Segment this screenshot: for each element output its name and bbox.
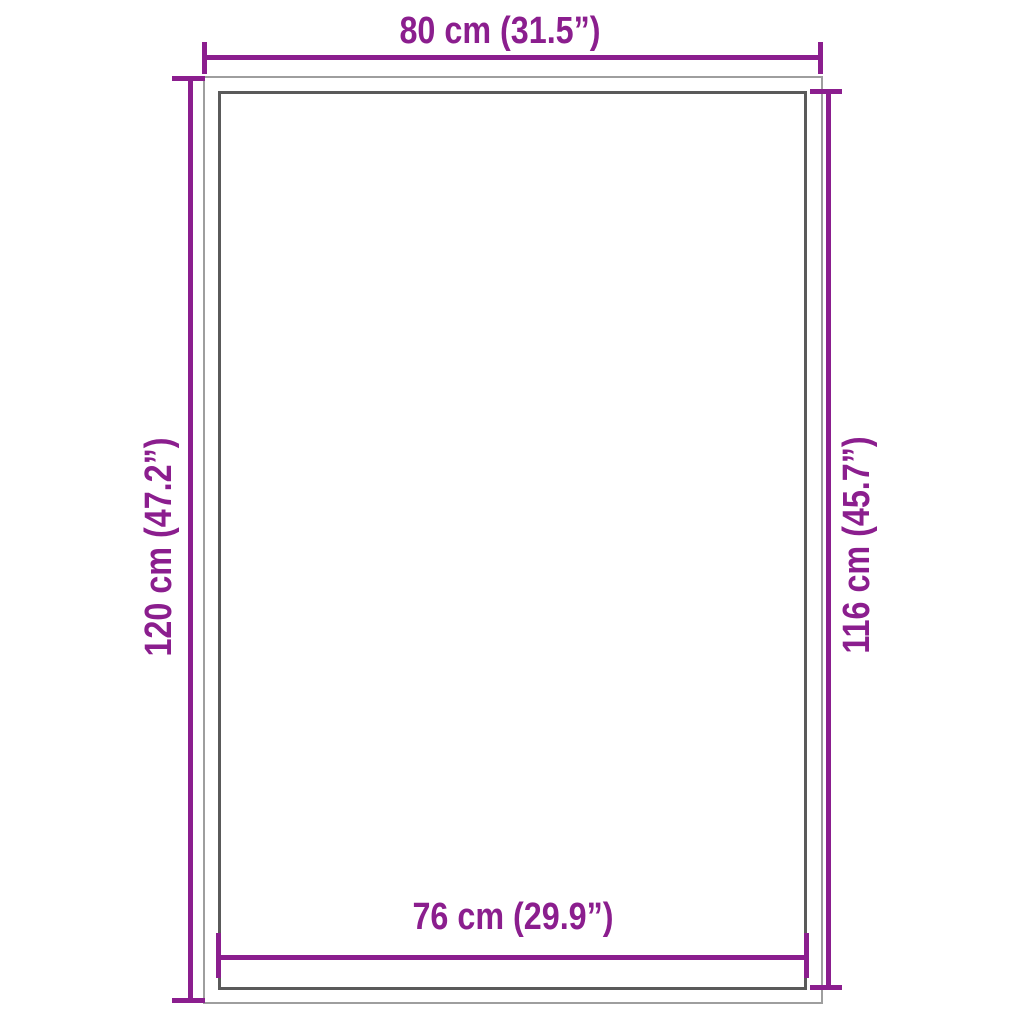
dimension-line-top bbox=[204, 55, 822, 60]
dimension-label-left-height: 120 cm (47.2”) bbox=[137, 249, 181, 844]
dimension-label-right-height: 116 cm (45.7”) bbox=[835, 247, 879, 842]
dimension-line-left bbox=[188, 76, 193, 1003]
dimension-tick-bottom-left bbox=[216, 933, 221, 978]
dimension-tick-right-top bbox=[810, 89, 842, 94]
dimension-tick-left-bottom bbox=[172, 998, 205, 1003]
dimension-tick-right-bottom bbox=[810, 985, 842, 990]
dimension-tick-top-right bbox=[818, 42, 823, 74]
product-dimension-diagram: 80 cm (31.5”) 120 cm (47.2”) 116 cm (45.… bbox=[0, 0, 1024, 1024]
dimension-label-top-width: 80 cm (31.5”) bbox=[203, 9, 798, 53]
dimension-tick-bottom-right bbox=[804, 933, 809, 978]
dimension-tick-left-top bbox=[172, 76, 205, 81]
dimension-line-bottom bbox=[218, 955, 807, 960]
product-outline-inner bbox=[218, 91, 807, 990]
dimension-label-bottom-width: 76 cm (29.9”) bbox=[216, 895, 811, 939]
dimension-line-right bbox=[826, 89, 831, 990]
